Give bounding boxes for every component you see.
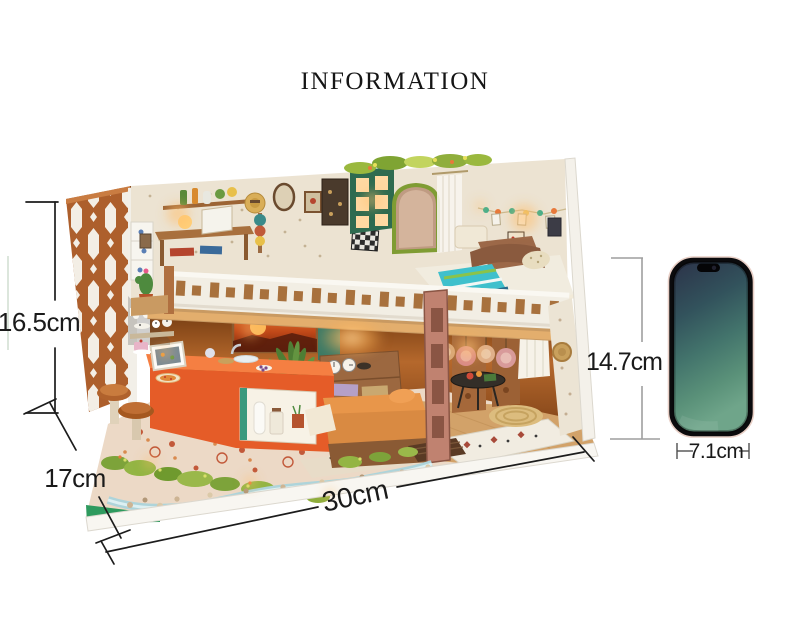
house-depth-label: 17cm — [44, 463, 106, 493]
pizza-plate — [156, 374, 180, 383]
straw-hat — [245, 193, 265, 213]
dollhouse-image — [66, 154, 598, 531]
front-camera — [712, 266, 716, 270]
dynamic-island — [697, 264, 720, 273]
phone-width-label: 7.1cm — [689, 440, 744, 463]
woven-rug — [489, 405, 543, 427]
ladder-post — [424, 290, 450, 463]
lattice-wall — [66, 186, 131, 412]
bedroom-frame-2 — [548, 218, 561, 236]
dark-picture — [322, 179, 348, 225]
phone-screen — [674, 263, 748, 432]
house-height-label: 16.5cm — [0, 307, 80, 337]
page-title: INFORMATION — [301, 68, 490, 95]
product-information-page: INFORMATION 16.5cm 17cm 30cm 14.7cm 7.1c… — [0, 0, 790, 621]
phone-image — [669, 257, 754, 437]
product-information-figure: INFORMATION 16.5cm 17cm 30cm 14.7cm 7.1c… — [0, 0, 790, 621]
loft-floor-edge — [131, 295, 168, 316]
phone-height-label: 14.7cm — [586, 348, 662, 376]
arch-mirror — [394, 185, 438, 252]
